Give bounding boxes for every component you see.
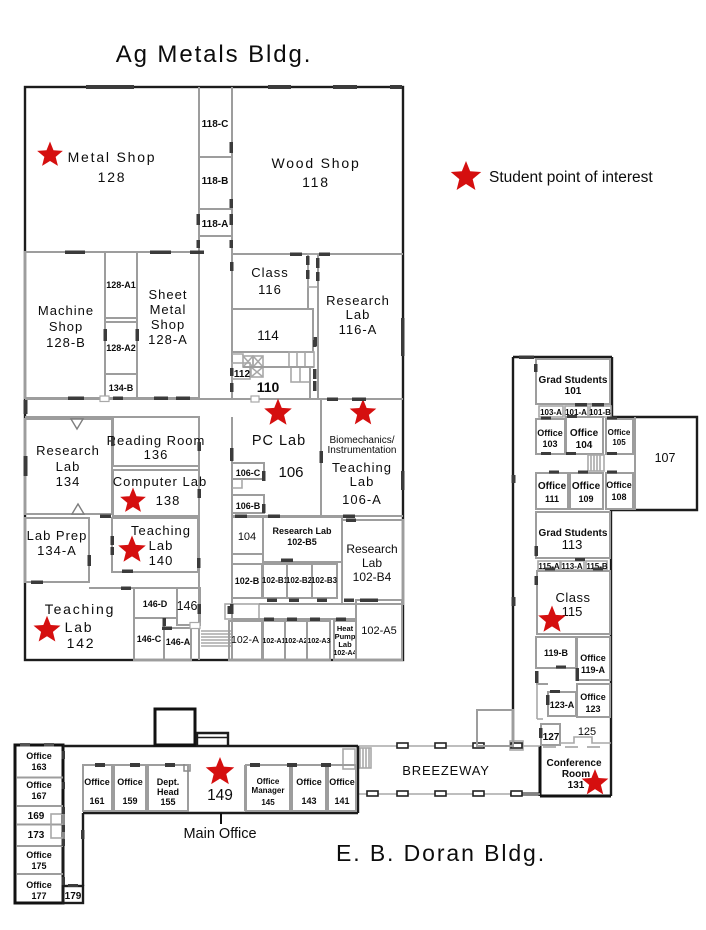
svg-text:102-A1: 102-A1 <box>263 638 286 645</box>
svg-text:146-D: 146-D <box>143 599 168 609</box>
svg-text:175: 175 <box>31 861 46 871</box>
svg-text:Shop: Shop <box>49 319 83 334</box>
svg-text:102-A5: 102-A5 <box>361 625 396 637</box>
svg-text:146-C: 146-C <box>137 634 162 644</box>
svg-text:Teaching: Teaching <box>332 460 392 475</box>
svg-text:146-A: 146-A <box>166 637 191 647</box>
svg-text:105: 105 <box>612 438 626 447</box>
svg-text:Lab: Lab <box>56 459 81 474</box>
svg-text:Office: Office <box>572 481 601 492</box>
svg-text:134-A: 134-A <box>37 543 77 558</box>
svg-text:101: 101 <box>565 386 582 397</box>
svg-text:Office: Office <box>26 751 52 761</box>
svg-text:102-B1: 102-B1 <box>262 576 289 585</box>
svg-text:Teaching: Teaching <box>45 601 115 617</box>
svg-text:Manager: Manager <box>252 786 285 795</box>
svg-text:Research: Research <box>326 293 390 308</box>
svg-text:149: 149 <box>207 787 233 804</box>
svg-text:Teaching: Teaching <box>131 523 191 538</box>
svg-text:110: 110 <box>257 379 280 395</box>
svg-text:102-A2: 102-A2 <box>285 638 308 645</box>
svg-text:128-A: 128-A <box>148 332 188 347</box>
svg-text:113: 113 <box>562 537 583 552</box>
svg-text:128: 128 <box>98 169 127 185</box>
svg-text:Wood Shop: Wood Shop <box>271 155 360 171</box>
svg-text:127: 127 <box>543 732 560 743</box>
svg-text:Office: Office <box>26 780 52 790</box>
svg-text:102-A4: 102-A4 <box>334 650 357 657</box>
svg-text:Head: Head <box>157 787 179 797</box>
svg-text:Research: Research <box>346 542 397 556</box>
svg-text:116: 116 <box>258 282 282 297</box>
svg-text:106-C: 106-C <box>236 468 261 478</box>
svg-text:Student point of interest: Student point of interest <box>489 169 653 186</box>
svg-text:Office: Office <box>26 880 52 890</box>
svg-text:106: 106 <box>278 464 303 481</box>
svg-text:106-B: 106-B <box>236 501 261 511</box>
svg-text:102-A3: 102-A3 <box>308 638 331 645</box>
svg-text:104: 104 <box>238 531 256 543</box>
svg-text:E. B. Doran Bldg.: E. B. Doran Bldg. <box>336 840 546 866</box>
svg-text:Office: Office <box>606 480 632 490</box>
svg-text:118-B: 118-B <box>202 176 229 187</box>
svg-text:Lab: Lab <box>346 307 371 322</box>
svg-text:140: 140 <box>149 553 174 568</box>
svg-text:111: 111 <box>545 494 559 504</box>
svg-text:Office: Office <box>329 777 355 787</box>
svg-text:PC Lab: PC Lab <box>252 433 306 449</box>
svg-text:Office: Office <box>296 777 322 787</box>
svg-text:134-B: 134-B <box>109 383 134 393</box>
svg-text:155: 155 <box>160 797 175 807</box>
svg-text:Office: Office <box>84 777 110 787</box>
svg-text:Class: Class <box>555 590 590 605</box>
svg-text:109: 109 <box>578 494 593 504</box>
svg-text:134: 134 <box>56 474 81 489</box>
svg-text:128-A1: 128-A1 <box>106 280 136 290</box>
svg-text:159: 159 <box>122 796 137 806</box>
svg-text:138: 138 <box>156 493 181 508</box>
svg-text:Instrumentation: Instrumentation <box>328 445 397 456</box>
svg-text:108: 108 <box>611 492 626 502</box>
svg-text:Lab: Lab <box>338 640 352 649</box>
svg-text:123: 123 <box>585 704 600 714</box>
svg-text:Metal: Metal <box>150 302 187 317</box>
svg-text:102-B4: 102-B4 <box>353 570 392 584</box>
svg-text:Lab: Lab <box>149 538 174 553</box>
svg-text:Lab Prep: Lab Prep <box>27 528 88 543</box>
svg-text:Lab: Lab <box>362 556 382 570</box>
svg-text:169: 169 <box>28 811 45 822</box>
svg-text:161: 161 <box>89 796 104 806</box>
svg-text:Reading Room: Reading Room <box>107 433 206 448</box>
svg-text:141: 141 <box>334 796 349 806</box>
svg-text:177: 177 <box>31 891 46 901</box>
svg-text:118-A: 118-A <box>202 219 229 230</box>
svg-text:103: 103 <box>542 439 557 449</box>
svg-text:Office: Office <box>257 777 280 786</box>
svg-text:128-B: 128-B <box>46 335 86 350</box>
svg-text:Dept.: Dept. <box>157 777 180 787</box>
svg-text:Office: Office <box>580 653 606 663</box>
svg-text:119-A: 119-A <box>581 665 606 675</box>
svg-text:167: 167 <box>31 791 46 801</box>
svg-text:119-B: 119-B <box>544 648 569 658</box>
svg-text:103-A: 103-A <box>540 408 562 417</box>
svg-text:142: 142 <box>67 635 96 651</box>
svg-text:Grad Students: Grad Students <box>539 375 608 386</box>
svg-text:118-C: 118-C <box>202 119 229 130</box>
svg-text:128-A2: 128-A2 <box>106 343 136 353</box>
svg-text:113-A: 113-A <box>561 562 583 571</box>
svg-text:Main Office: Main Office <box>183 826 256 842</box>
svg-text:179: 179 <box>65 891 82 902</box>
svg-text:145: 145 <box>261 798 275 807</box>
svg-text:Sheet: Sheet <box>149 287 188 302</box>
svg-text:102-B3: 102-B3 <box>311 576 338 585</box>
svg-text:Research Lab: Research Lab <box>272 526 332 536</box>
svg-text:Office: Office <box>26 850 52 860</box>
svg-text:104: 104 <box>576 440 593 451</box>
svg-text:146: 146 <box>177 599 198 613</box>
svg-text:131: 131 <box>568 780 585 791</box>
svg-text:Machine: Machine <box>38 303 94 318</box>
svg-text:118: 118 <box>302 174 330 190</box>
svg-text:Conference: Conference <box>546 758 601 769</box>
svg-text:107: 107 <box>655 451 676 465</box>
svg-text:114: 114 <box>257 328 279 343</box>
svg-text:101-B: 101-B <box>589 408 611 417</box>
svg-text:123-A: 123-A <box>550 700 575 710</box>
svg-text:102-B: 102-B <box>235 576 260 586</box>
svg-text:102-B2: 102-B2 <box>286 576 313 585</box>
svg-text:Research: Research <box>36 443 100 458</box>
svg-text:106-A: 106-A <box>342 492 382 507</box>
svg-text:Ag Metals Bldg.: Ag Metals Bldg. <box>116 41 313 68</box>
svg-text:136: 136 <box>144 447 169 462</box>
svg-text:Class: Class <box>251 265 289 280</box>
svg-text:Computer Lab: Computer Lab <box>113 474 207 489</box>
svg-text:Office: Office <box>570 428 599 439</box>
svg-text:115: 115 <box>562 604 583 619</box>
svg-text:Lab: Lab <box>350 474 375 489</box>
svg-text:Room: Room <box>562 769 590 780</box>
svg-text:Office: Office <box>538 481 567 492</box>
svg-text:Metal Shop: Metal Shop <box>68 149 157 165</box>
svg-text:Office: Office <box>608 428 631 437</box>
svg-text:Lab: Lab <box>65 619 94 635</box>
svg-text:116-A: 116-A <box>339 322 378 337</box>
svg-text:112: 112 <box>234 369 251 380</box>
svg-text:Shop: Shop <box>151 317 185 332</box>
svg-text:173: 173 <box>28 830 45 841</box>
svg-text:Office: Office <box>117 777 143 787</box>
svg-text:Office: Office <box>580 692 606 702</box>
svg-text:163: 163 <box>31 762 46 772</box>
svg-text:102-B5: 102-B5 <box>287 537 317 547</box>
svg-text:Office: Office <box>537 428 563 438</box>
svg-text:143: 143 <box>301 796 316 806</box>
svg-text:BREEZEWAY: BREEZEWAY <box>402 763 489 778</box>
svg-text:102-A: 102-A <box>231 634 259 646</box>
